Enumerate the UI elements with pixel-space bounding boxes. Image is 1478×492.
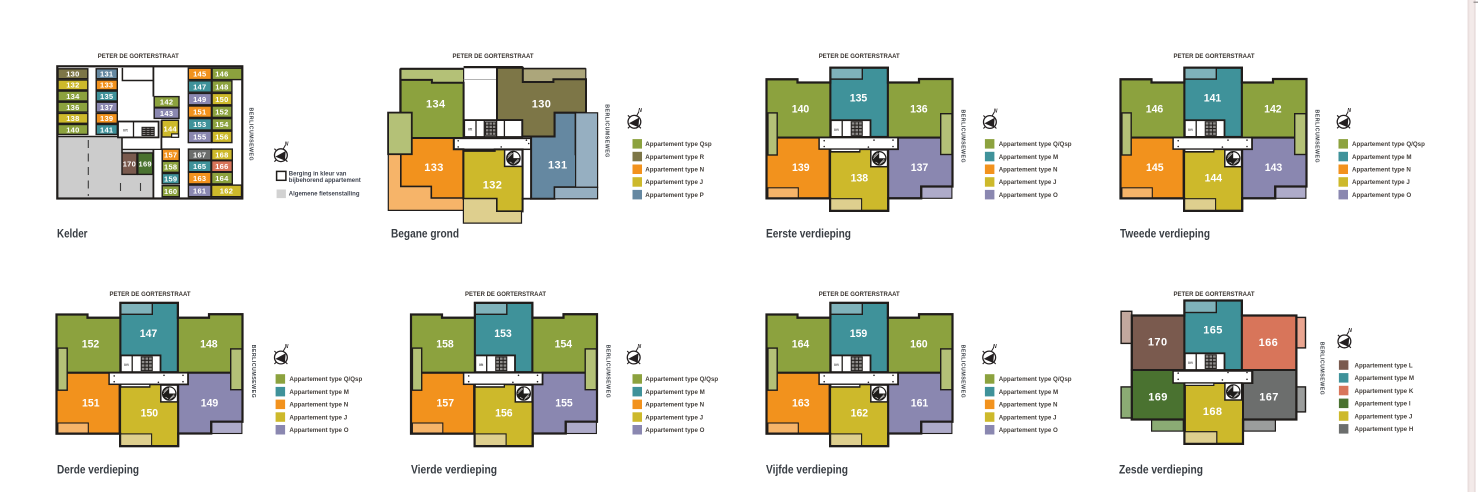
- svg-text:Appartement type O: Appartement type O: [999, 427, 1058, 434]
- svg-text:168: 168: [1203, 406, 1223, 418]
- svg-text:Appartement type N: Appartement type N: [999, 167, 1058, 174]
- svg-text:143: 143: [160, 109, 173, 118]
- svg-text:160: 160: [910, 339, 928, 351]
- svg-text:153: 153: [494, 328, 512, 340]
- svg-text:Appartement type Q/Qsp: Appartement type Q/Qsp: [289, 376, 362, 383]
- svg-text:161: 161: [193, 187, 206, 196]
- svg-text:145: 145: [1146, 162, 1164, 174]
- svg-text:150: 150: [141, 408, 159, 420]
- svg-text:N: N: [993, 344, 997, 350]
- svg-text:Appartement type Qsp: Appartement type Qsp: [645, 141, 712, 148]
- svg-text:164: 164: [215, 174, 229, 183]
- svg-text:140: 140: [66, 125, 79, 134]
- svg-text:154: 154: [555, 339, 573, 351]
- svg-text:Appartement type N: Appartement type N: [999, 402, 1058, 409]
- svg-text:Eerste verdieping: Eerste verdieping: [766, 229, 851, 241]
- svg-text:Appartement type N: Appartement type N: [645, 402, 704, 409]
- svg-text:170: 170: [123, 160, 136, 169]
- svg-text:BERLICUMSEWEG: BERLICUMSEWEG: [960, 110, 966, 164]
- svg-text:132: 132: [483, 180, 503, 192]
- svg-text:137: 137: [911, 162, 929, 174]
- svg-text:Appartement type J: Appartement type J: [645, 179, 703, 186]
- svg-text:BERLICUMSEWEG: BERLICUMSEWEG: [604, 104, 610, 158]
- svg-text:151: 151: [193, 108, 206, 117]
- svg-text:132: 132: [66, 81, 79, 90]
- svg-text:169: 169: [138, 160, 151, 169]
- svg-text:135: 135: [850, 93, 868, 105]
- svg-text:BERLICUMSEWEG: BERLICUMSEWEG: [960, 345, 966, 399]
- svg-text:N: N: [285, 344, 289, 350]
- svg-text:155: 155: [193, 133, 206, 142]
- svg-text:PETER DE GORTERSTRAAT: PETER DE GORTERSTRAAT: [453, 53, 534, 60]
- svg-text:138: 138: [66, 114, 79, 123]
- svg-text:131: 131: [100, 70, 113, 79]
- svg-text:Appartement type J: Appartement type J: [1352, 179, 1410, 186]
- svg-text:143: 143: [1265, 162, 1283, 174]
- svg-text:Appartement type N: Appartement type N: [1352, 167, 1411, 174]
- svg-text:Appartement type J: Appartement type J: [999, 414, 1057, 421]
- svg-text:154: 154: [215, 120, 229, 129]
- svg-text:Appartement type N: Appartement type N: [645, 167, 704, 174]
- svg-text:159: 159: [850, 328, 868, 340]
- svg-text:166: 166: [215, 162, 228, 171]
- svg-text:N: N: [637, 344, 641, 350]
- svg-text:131: 131: [548, 160, 568, 172]
- svg-text:155: 155: [555, 397, 573, 409]
- svg-text:161: 161: [911, 397, 929, 409]
- svg-text:PETER DE GORTERSTRAAT: PETER DE GORTERSTRAAT: [1174, 291, 1255, 298]
- svg-text:162: 162: [851, 408, 869, 420]
- svg-text:142: 142: [160, 98, 173, 107]
- svg-text:Appartement type Q/Qsp: Appartement type Q/Qsp: [645, 376, 718, 383]
- svg-text:N: N: [1347, 108, 1351, 114]
- svg-text:BERLICUMSEWEG: BERLICUMSEWEG: [250, 345, 256, 399]
- svg-text:149: 149: [193, 95, 206, 104]
- svg-text:152: 152: [215, 108, 228, 117]
- svg-text:BERLICUMSEWEG: BERLICUMSEWEG: [1319, 342, 1325, 396]
- svg-text:133: 133: [424, 162, 444, 174]
- svg-text:156: 156: [495, 408, 513, 420]
- svg-text:158: 158: [164, 163, 177, 172]
- svg-text:Appartement type M: Appartement type M: [289, 389, 348, 396]
- svg-text:Appartement type K: Appartement type K: [1355, 388, 1414, 395]
- svg-text:Appartement type Q/Qsp: Appartement type Q/Qsp: [999, 376, 1072, 383]
- svg-text:157: 157: [437, 397, 455, 409]
- svg-text:156: 156: [215, 133, 228, 142]
- svg-text:Appartement type J: Appartement type J: [999, 179, 1057, 186]
- svg-text:PETER DE GORTERSTRAAT: PETER DE GORTERSTRAAT: [465, 291, 546, 298]
- svg-text:Derde verdieping: Derde verdieping: [57, 465, 139, 477]
- svg-text:151: 151: [82, 397, 100, 409]
- svg-text:170: 170: [1148, 337, 1168, 349]
- svg-text:Appartement type M: Appartement type M: [1355, 375, 1414, 382]
- svg-text:150: 150: [215, 95, 228, 104]
- svg-text:134: 134: [426, 98, 446, 110]
- svg-text:Begane grond: Begane grond: [391, 229, 459, 241]
- svg-text:141: 141: [100, 125, 113, 134]
- svg-text:Appartement type R: Appartement type R: [645, 154, 704, 161]
- svg-text:Appartement type J: Appartement type J: [289, 414, 347, 421]
- svg-text:142: 142: [1264, 103, 1282, 115]
- svg-text:Appartement type O: Appartement type O: [289, 427, 348, 434]
- svg-text:Vierde verdieping: Vierde verdieping: [411, 465, 497, 477]
- svg-text:137: 137: [100, 103, 113, 112]
- svg-text:158: 158: [436, 339, 454, 351]
- svg-text:139: 139: [100, 114, 113, 123]
- svg-text:Appartement type O: Appartement type O: [1352, 192, 1411, 199]
- svg-text:N: N: [1348, 328, 1352, 334]
- svg-text:Appartement type Q/Qsp: Appartement type Q/Qsp: [999, 141, 1072, 148]
- svg-text:PETER DE GORTERSTRAAT: PETER DE GORTERSTRAAT: [98, 53, 179, 60]
- svg-text:Tweede verdieping: Tweede verdieping: [1120, 229, 1210, 241]
- svg-text:148: 148: [200, 339, 218, 351]
- svg-text:BERLICUMSEWEG: BERLICUMSEWEG: [1314, 110, 1320, 164]
- svg-text:Appartement type I: Appartement type I: [1355, 401, 1411, 408]
- svg-text:145: 145: [193, 70, 206, 79]
- svg-text:149: 149: [201, 397, 219, 409]
- svg-text:163: 163: [792, 397, 810, 409]
- svg-text:165: 165: [1203, 324, 1223, 336]
- svg-text:144: 144: [163, 125, 177, 134]
- svg-text:163: 163: [193, 174, 206, 183]
- svg-text:PETER DE GORTERSTRAAT: PETER DE GORTERSTRAAT: [110, 291, 191, 298]
- svg-text:136: 136: [910, 103, 928, 115]
- svg-text:133: 133: [100, 81, 113, 90]
- svg-text:Kelder: Kelder: [57, 229, 88, 241]
- svg-text:144: 144: [1205, 172, 1223, 184]
- svg-text:bijbehorend appartement: bijbehorend appartement: [289, 178, 361, 184]
- svg-text:Appartement type J: Appartement type J: [1355, 413, 1413, 420]
- svg-text:130: 130: [532, 99, 552, 111]
- svg-text:Appartement type Q/Qsp: Appartement type Q/Qsp: [1352, 141, 1425, 148]
- svg-text:Appartement type J: Appartement type J: [645, 414, 703, 421]
- svg-text:146: 146: [1146, 103, 1164, 115]
- svg-text:PETER DE GORTERSTRAAT: PETER DE GORTERSTRAAT: [819, 291, 900, 298]
- svg-text:138: 138: [851, 172, 869, 184]
- svg-text:Appartement type H: Appartement type H: [1355, 426, 1414, 433]
- svg-text:152: 152: [82, 339, 100, 351]
- svg-text:169: 169: [1148, 391, 1168, 403]
- svg-text:140: 140: [792, 103, 810, 115]
- svg-text:N: N: [994, 108, 998, 114]
- svg-text:157: 157: [164, 151, 177, 160]
- svg-text:Appartement type M: Appartement type M: [999, 154, 1058, 161]
- svg-text:153: 153: [193, 120, 206, 129]
- svg-text:BERLICUMSEWEG: BERLICUMSEWEG: [605, 345, 611, 399]
- svg-text:Appartement type M: Appartement type M: [1352, 154, 1411, 161]
- svg-text:Appartement type N: Appartement type N: [289, 402, 348, 409]
- svg-text:148: 148: [215, 82, 228, 91]
- svg-text:Appartement type M: Appartement type M: [999, 389, 1058, 396]
- svg-text:162: 162: [220, 187, 233, 196]
- svg-text:146: 146: [215, 70, 228, 79]
- svg-text:Appartement type O: Appartement type O: [999, 192, 1058, 199]
- svg-text:136: 136: [66, 103, 79, 112]
- svg-text:Vijfde verdieping: Vijfde verdieping: [766, 465, 848, 477]
- svg-text:139: 139: [792, 162, 810, 174]
- svg-text:N: N: [638, 108, 642, 114]
- svg-text:168: 168: [215, 150, 228, 159]
- svg-text:Berging in kleur van: Berging in kleur van: [289, 172, 347, 178]
- svg-text:Appartement type M: Appartement type M: [645, 389, 704, 396]
- svg-text:147: 147: [193, 82, 206, 91]
- svg-text:Appartement type P: Appartement type P: [645, 192, 703, 199]
- svg-text:PETER DE GORTERSTRAAT: PETER DE GORTERSTRAAT: [819, 53, 900, 60]
- svg-text:130: 130: [66, 70, 79, 79]
- svg-text:Algemene fietsenstalling: Algemene fietsenstalling: [289, 192, 360, 198]
- svg-text:164: 164: [792, 339, 810, 351]
- svg-text:141: 141: [1204, 93, 1222, 105]
- svg-text:N: N: [285, 142, 289, 148]
- svg-text:147: 147: [140, 328, 158, 340]
- svg-text:Zesde verdieping: Zesde verdieping: [1119, 465, 1203, 477]
- svg-text:134: 134: [66, 92, 80, 101]
- svg-text:135: 135: [100, 92, 113, 101]
- svg-text:159: 159: [164, 175, 177, 184]
- svg-text:167: 167: [193, 150, 206, 159]
- svg-text:165: 165: [193, 162, 206, 171]
- svg-text:Appartement type L: Appartement type L: [1355, 362, 1413, 369]
- svg-text:167: 167: [1259, 391, 1279, 403]
- svg-text:Appartement type O: Appartement type O: [645, 427, 704, 434]
- svg-text:160: 160: [164, 187, 177, 196]
- svg-text:166: 166: [1259, 337, 1279, 349]
- svg-text:BERLICUMSEWEG: BERLICUMSEWEG: [248, 108, 254, 162]
- svg-text:PETER DE GORTERSTRAAT: PETER DE GORTERSTRAAT: [1174, 53, 1255, 60]
